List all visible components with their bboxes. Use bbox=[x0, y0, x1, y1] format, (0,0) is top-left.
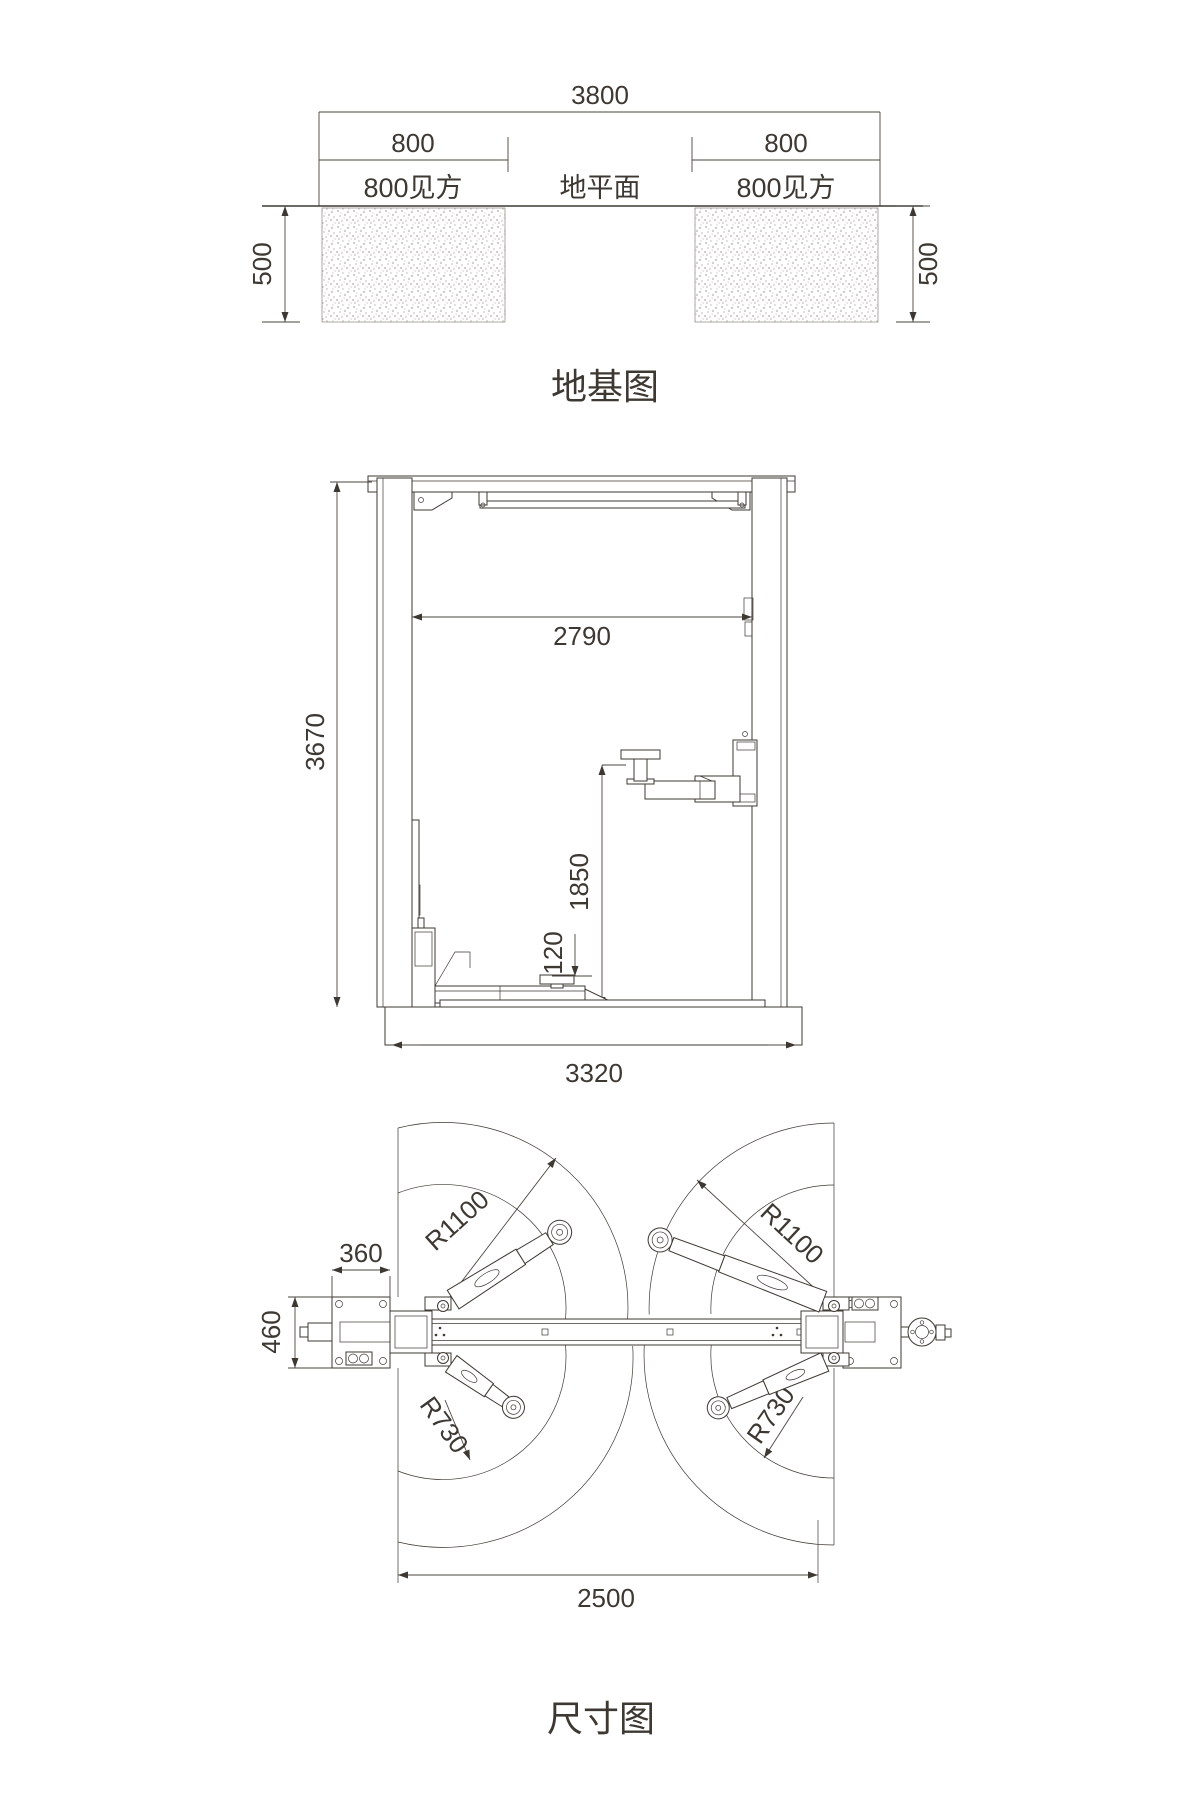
top-beam-left-gusset bbox=[414, 492, 452, 510]
left-short-arm bbox=[445, 1355, 529, 1423]
dim-500-left-label: 500 bbox=[247, 242, 277, 285]
drawing-canvas: 3800 800 800 800见方 地平面 800见方 500 500 地基图 bbox=[0, 0, 1200, 1800]
dim-2790-label: 2790 bbox=[553, 621, 611, 651]
dim-800-right-label: 800 bbox=[764, 128, 807, 158]
pit-right-label: 800见方 bbox=[736, 173, 835, 203]
dim-460-label: 460 bbox=[256, 1310, 286, 1353]
dim-500-right-label: 500 bbox=[913, 242, 943, 285]
power-unit bbox=[901, 1318, 951, 1346]
plan-view: R1100 R1100 R730 R730 bbox=[256, 1122, 951, 1739]
safety-bar bbox=[480, 501, 745, 508]
dim-800-left-label: 800 bbox=[391, 128, 434, 158]
top-beam bbox=[368, 476, 795, 492]
r1100-left-label: R1100 bbox=[419, 1184, 495, 1256]
dim-360-label: 360 bbox=[339, 1238, 382, 1268]
drawing-sheet: 3800 800 800 800见方 地平面 800见方 500 500 地基图 bbox=[0, 0, 1200, 1800]
r1100-right-label: R1100 bbox=[755, 1197, 830, 1270]
ground-plane-label: 地平面 bbox=[560, 173, 641, 203]
left-short-arm-arc bbox=[398, 1346, 633, 1547]
left-foundation-block bbox=[322, 208, 505, 322]
left-long-arm-arc bbox=[398, 1122, 628, 1319]
foundation-view: 3800 800 800 800见方 地平面 800见方 500 500 地基图 bbox=[247, 80, 943, 407]
front-view: 3670 2790 1850 bbox=[300, 476, 802, 1088]
left-column-plan bbox=[300, 1297, 451, 1368]
dim-120-label: 120 bbox=[538, 931, 568, 974]
plan-title: 尺寸图 bbox=[547, 1698, 655, 1739]
right-foundation-block bbox=[695, 208, 878, 322]
dim-2500-label: 2500 bbox=[577, 1583, 635, 1613]
dim-3800-label: 3800 bbox=[571, 80, 629, 110]
right-column-plan bbox=[801, 1297, 951, 1368]
foundation-title: 地基图 bbox=[551, 366, 659, 407]
dim-3320-label: 3320 bbox=[565, 1058, 623, 1088]
base-plate bbox=[385, 1007, 802, 1045]
left-column bbox=[377, 478, 412, 1007]
dim-3670-label: 3670 bbox=[300, 713, 330, 771]
lowered-arm-assembly bbox=[412, 820, 614, 1007]
raised-arm-assembly bbox=[621, 732, 757, 807]
drive-over-cover bbox=[440, 1000, 765, 1007]
dim-1850-label: 1850 bbox=[564, 853, 594, 911]
pit-left-label: 800见方 bbox=[363, 173, 462, 203]
